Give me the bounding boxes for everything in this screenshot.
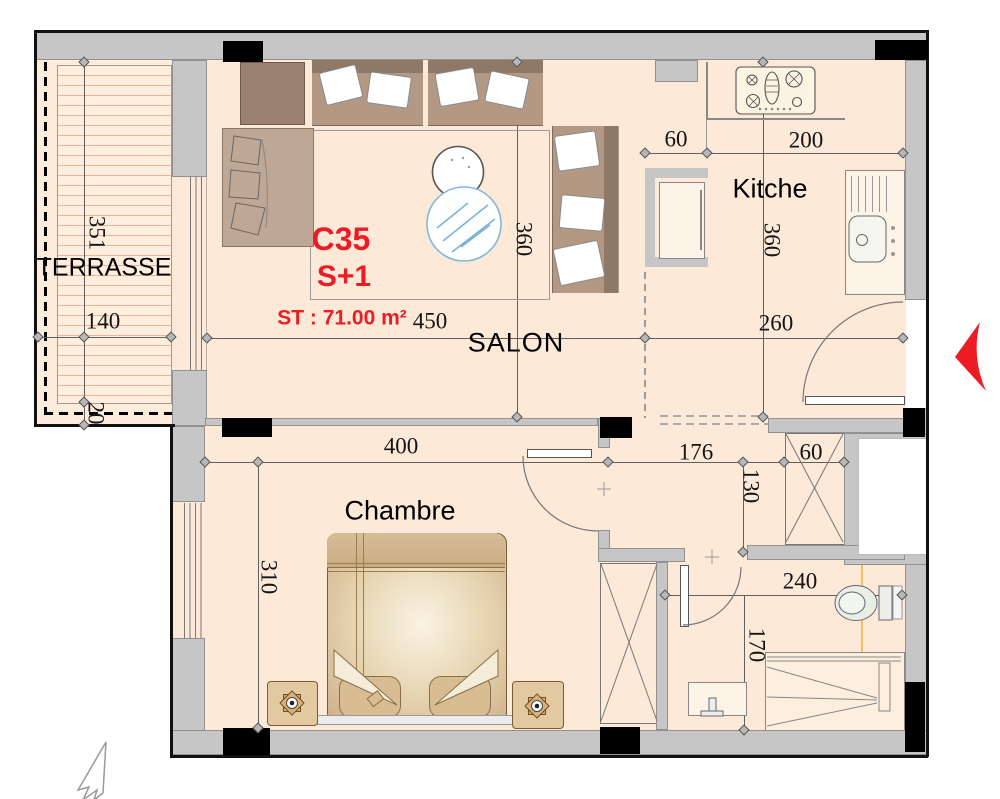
dim-kitchen-depth: 360	[761, 223, 784, 258]
center-marks	[597, 482, 719, 564]
dim-entry-width: 260	[759, 312, 794, 335]
dim-bath-depth: 170	[746, 628, 769, 663]
dim-kitchen-width: 200	[789, 129, 824, 152]
kitchen-sink-icon	[849, 216, 895, 262]
dim-terrasse-edge: 20	[85, 402, 108, 425]
floor-plan: TERRASSE SALON Kitche Chambre C35 S+1 ST…	[0, 0, 1000, 799]
dim-hall-width: 176	[679, 441, 714, 464]
dim-hall-depth: 130	[740, 469, 763, 504]
room-label-kitchen: Kitche	[732, 176, 807, 203]
entrance-arrow-icon	[955, 322, 986, 391]
entry-door-arc	[803, 302, 903, 402]
unit-code: C35	[312, 223, 371, 255]
unit-type: S+1	[317, 262, 371, 292]
room-label-bedroom: Chambre	[344, 498, 455, 525]
lamp-icon	[525, 694, 549, 718]
dim-terrasse-width: 140	[86, 310, 121, 333]
dim-terrasse-depth: 351	[86, 216, 109, 251]
north-arrow-icon	[78, 742, 106, 799]
toilet-icon	[835, 586, 902, 621]
bath-sink-icon	[701, 698, 723, 716]
dim-bedroom-width: 400	[384, 435, 419, 458]
dim-kitchen-offset: 60	[665, 128, 688, 151]
room-label-salon: SALON	[468, 330, 565, 357]
unit-surface: ST : 71.00 m²	[277, 308, 407, 329]
bedroom-door-arc	[523, 456, 598, 531]
dim-bath-width: 240	[783, 570, 818, 593]
coffee-table-icon	[427, 147, 501, 262]
stove-icon	[736, 67, 815, 114]
dim-bedroom-depth: 310	[258, 560, 281, 595]
lamp-icon	[280, 691, 304, 715]
room-label-terrasse: TERRASSE	[37, 256, 172, 281]
dim-hall-closet-width: 60	[800, 441, 823, 464]
shower-icon	[767, 657, 901, 726]
dim-salon-width: 450	[413, 310, 448, 333]
bed-fold-lines	[334, 650, 498, 707]
plan-vector-overlay	[0, 0, 1000, 799]
dim-salon-depth: 360	[513, 222, 536, 257]
bathroom-door-arc	[683, 567, 741, 625]
sketch-sofa-lines	[229, 136, 267, 235]
closet-x-pattern	[601, 564, 657, 721]
